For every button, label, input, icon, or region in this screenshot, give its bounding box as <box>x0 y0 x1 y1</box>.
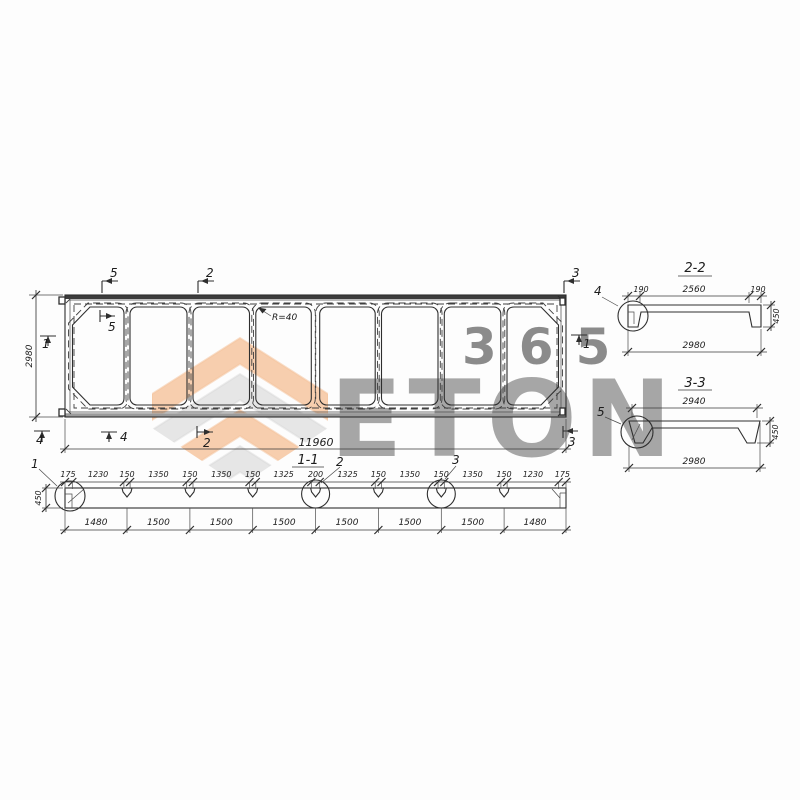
plan-view: R=40 5 2 3 5 <box>25 266 591 453</box>
marker-inner-5: 5 <box>100 310 116 334</box>
marker-bottom-3-label: 3 <box>568 435 576 449</box>
svg-text:150: 150 <box>119 470 134 479</box>
svg-text:1325: 1325 <box>273 470 293 479</box>
section-1-1: 1-1 1 2 <box>31 453 571 534</box>
svg-text:1480: 1480 <box>524 518 547 528</box>
marker-bottom-2: 2 <box>197 426 213 450</box>
section-1-1-height-dim: 450 <box>34 484 63 512</box>
section-1-1-bottom-dims: 1480 1500 1500 1500 1500 1500 1500 1480 <box>60 508 571 534</box>
marker-right-1-label: 1 <box>583 337 591 351</box>
svg-text:1230: 1230 <box>88 470 108 479</box>
svg-text:1500: 1500 <box>273 518 296 528</box>
marker-right-1: 1 <box>571 335 591 351</box>
plan-dimension-width: 11960 <box>60 419 571 453</box>
radius-annotation: R=40 <box>258 308 298 324</box>
opening-7 <box>444 307 501 405</box>
plan-height-label: 2980 <box>25 344 35 367</box>
marker-bottom-2-label: 2 <box>203 436 211 450</box>
marker-bottom-3: 3 <box>563 426 578 449</box>
opening-2 <box>130 307 187 405</box>
plan-openings-hidden <box>69 303 563 409</box>
svg-text:1500: 1500 <box>461 518 484 528</box>
opening-6 <box>382 307 439 405</box>
section-3-3-title: 3-3 <box>684 376 705 391</box>
svg-text:175: 175 <box>555 470 570 479</box>
svg-text:1350: 1350 <box>211 470 231 479</box>
slab-right-end-detail <box>552 489 566 508</box>
detail-3-label: 3 <box>452 453 460 467</box>
plan-edge-tabs <box>59 297 565 416</box>
svg-text:190: 190 <box>750 285 765 294</box>
marker-bottom-4: 4 <box>101 430 128 444</box>
svg-text:200: 200 <box>308 470 323 479</box>
section-3-3-top-dim: 2940 <box>626 397 763 418</box>
svg-text:2980: 2980 <box>683 457 706 467</box>
drawing-layer: R=40 5 2 3 5 <box>0 0 800 800</box>
svg-text:2560: 2560 <box>683 285 706 295</box>
marker-top-5-label: 5 <box>110 266 118 280</box>
detail-1-label: 1 <box>31 457 39 471</box>
svg-text:150: 150 <box>496 470 511 479</box>
section-3-3-left-wedge-detail <box>632 424 640 440</box>
section-1-1-slab <box>65 488 566 508</box>
svg-text:190: 190 <box>633 285 648 294</box>
section-2-2-bottom-dim: 2980 <box>622 329 767 356</box>
opening-5 <box>320 307 376 405</box>
marker-top-2: 2 <box>198 266 214 293</box>
svg-text:1350: 1350 <box>462 470 482 479</box>
marker-left-4-label: 4 <box>36 433 44 447</box>
opening-1 <box>73 307 125 405</box>
marker-left-4: 4 <box>34 431 50 447</box>
svg-text:450: 450 <box>771 424 780 439</box>
svg-text:1325: 1325 <box>337 470 357 479</box>
marker-bottom-4-label: 4 <box>120 430 128 444</box>
detail-2-label: 2 <box>336 455 344 469</box>
svg-text:1350: 1350 <box>400 470 420 479</box>
svg-text:2980: 2980 <box>683 341 706 351</box>
section-2-2-height-dim: 450 <box>763 301 781 331</box>
marker-top-2-label: 2 <box>206 266 214 280</box>
bottom-dim-extensions <box>65 508 566 533</box>
svg-text:1350: 1350 <box>148 470 168 479</box>
marker-left-1-label: 1 <box>42 337 50 351</box>
plan-dimension-height: 2980 <box>25 290 63 422</box>
marker-top-3: 3 <box>564 266 580 293</box>
section-3-3-profile <box>629 421 760 443</box>
marker-left-1: 1 <box>40 336 56 351</box>
svg-text:1230: 1230 <box>523 470 543 479</box>
detail-callout-5: 5 <box>597 405 653 448</box>
svg-text:150: 150 <box>371 470 386 479</box>
section-3-3: 3-3 2940 5 450 <box>597 376 780 472</box>
svg-text:1500: 1500 <box>147 518 170 528</box>
svg-text:150: 150 <box>182 470 197 479</box>
radius-note-label: R=40 <box>272 313 298 323</box>
svg-text:1500: 1500 <box>336 518 359 528</box>
section-2-2-title: 2-2 <box>684 261 705 276</box>
marker-top-5: 5 <box>102 266 118 293</box>
svg-text:175: 175 <box>60 470 75 479</box>
detail-4-label: 4 <box>594 284 602 298</box>
section-1-1-height-label: 450 <box>34 490 43 505</box>
marker-inner-5-label: 5 <box>108 320 116 334</box>
detail-5-label: 5 <box>597 405 605 419</box>
drawing-sheet: 365 ETON <box>0 0 800 800</box>
svg-text:1500: 1500 <box>210 518 233 528</box>
opening-8 <box>507 307 559 405</box>
section-3-3-bottom-dim: 2980 <box>623 423 766 472</box>
svg-text:1500: 1500 <box>398 518 421 528</box>
slab-rib-notches <box>122 488 509 497</box>
section-1-1-title: 1-1 <box>297 453 318 468</box>
svg-text:2940: 2940 <box>683 397 706 407</box>
plan-width-label: 11960 <box>299 436 334 449</box>
section-2-2-top-dims: 190 2560 190 <box>622 285 767 303</box>
top-dim-labels: 175 1230 150 1350 150 1350 150 1325 200 … <box>60 470 570 479</box>
svg-text:1480: 1480 <box>85 518 108 528</box>
svg-text:450: 450 <box>772 308 781 323</box>
detail-callout-3: 3 <box>427 453 459 508</box>
slab-left-end-detail <box>65 489 84 508</box>
svg-text:150: 150 <box>434 470 449 479</box>
opening-3 <box>193 307 250 405</box>
marker-top-3-label: 3 <box>572 266 580 280</box>
svg-text:150: 150 <box>245 470 260 479</box>
section-2-2-left-leg-detail <box>628 312 634 324</box>
section-2-2: 2-2 4 190 2560 190 <box>594 261 781 356</box>
